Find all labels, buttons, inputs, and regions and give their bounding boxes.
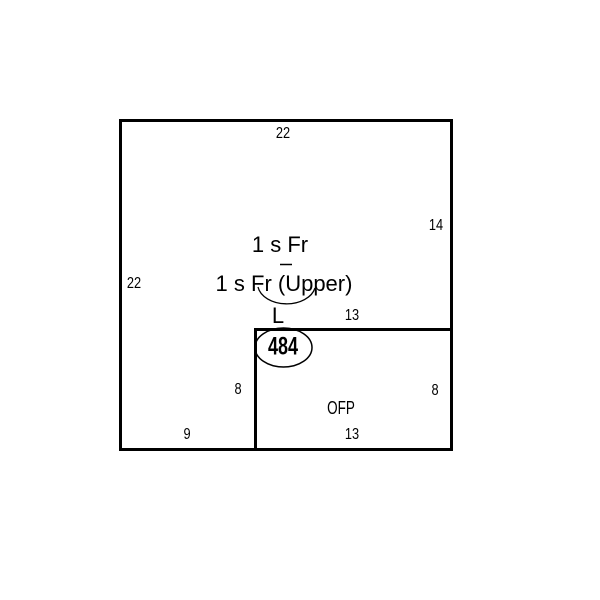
label-area-value: 484 [268,335,298,360]
floorplan-sketch: 22 22 14 13 8 8 9 13 1 s Fr 1 s Fr (Uppe… [0,0,600,600]
dim-porch-right: 8 [431,383,438,399]
label-porch: OFP [327,399,355,417]
label-story-upper: 1 s Fr (Upper) [216,273,353,295]
dim-bottom-left: 9 [183,427,190,443]
dim-left-height: 22 [127,276,141,292]
floorplan-lines [0,0,600,600]
dim-porch-top: 13 [345,308,359,324]
dim-right-height: 14 [429,218,443,234]
dim-porch-bottom: 13 [345,427,359,443]
dim-top-width: 22 [276,126,290,142]
label-story: 1 s Fr [252,234,308,256]
dim-porch-left: 8 [234,382,241,398]
label-corner-mark: L [272,305,284,327]
